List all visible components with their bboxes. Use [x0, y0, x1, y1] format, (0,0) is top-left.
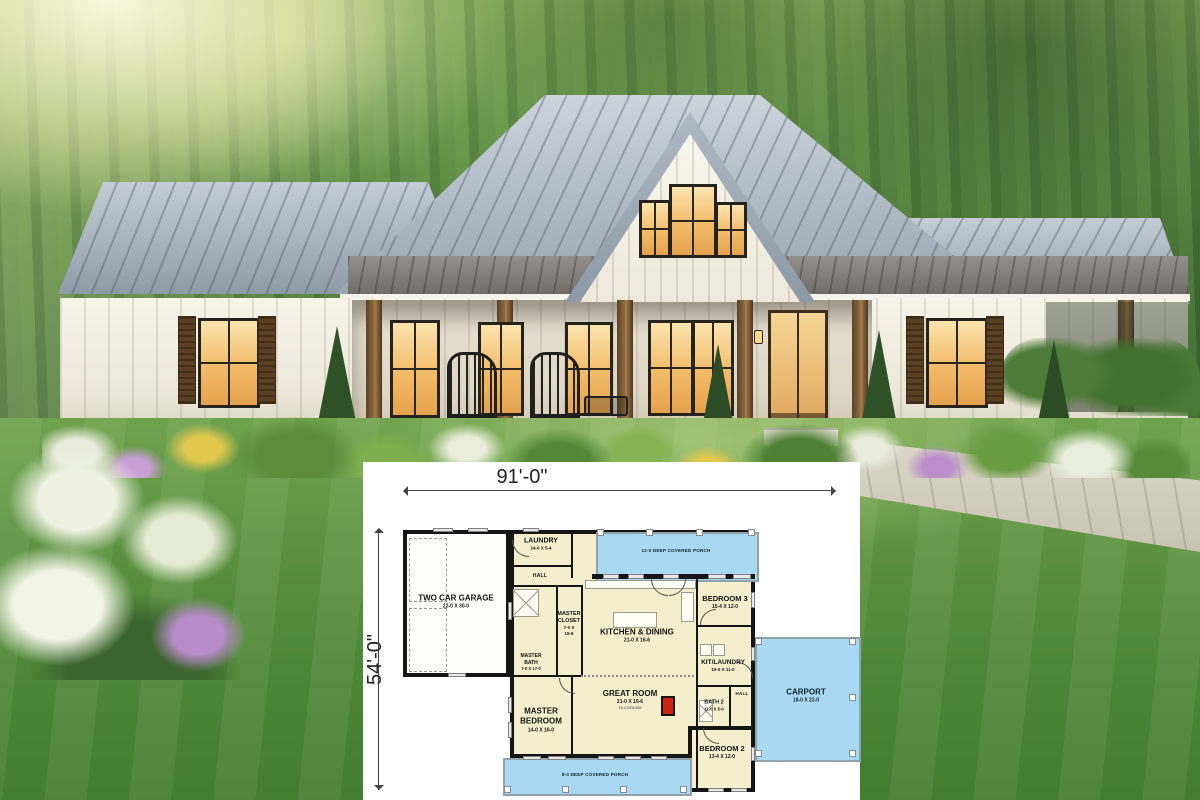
wall: [510, 585, 583, 587]
room-name: BEDROOM 2: [699, 744, 744, 753]
room-dims: 22-0 X 30-0: [418, 604, 494, 611]
window-marker: [625, 756, 641, 760]
fireplace: [661, 696, 675, 716]
room-dims: 13-4 X 12-0: [699, 754, 744, 761]
great-room-label: GREAT ROOM 21-0 X 19-6 10-4 CEILING: [603, 689, 658, 711]
room-dims: 14-0 X 16-0: [515, 727, 567, 734]
window-marker: [731, 788, 747, 792]
window-marker: [598, 756, 614, 760]
floor-plan-panel: 91'-0" 54'-0": [363, 462, 860, 800]
room-name: LAUNDRY: [524, 538, 558, 545]
kitchen-label: KITCHEN & DINING 21-0 X 16-6: [600, 628, 674, 645]
window-marker: [751, 647, 755, 661]
porch-column: [696, 529, 703, 536]
porch-column: [504, 786, 511, 793]
carport-column: [755, 750, 762, 757]
porch-column: [680, 786, 687, 793]
gable-window-left: [639, 200, 671, 258]
room-name: MASTER BATH: [520, 653, 541, 666]
room-dims: 15-0 X 11-0: [701, 667, 745, 673]
room-name: KIT/LAUNDRY: [701, 659, 745, 666]
window-marker: [508, 602, 512, 620]
room-name: GREAT ROOM: [603, 689, 658, 698]
room-dims: 14-0 X 5-4: [524, 546, 558, 552]
window-marker: [628, 574, 644, 579]
wall: [729, 685, 731, 728]
dimension-arrow-left: [403, 486, 408, 496]
laundry-label: LAUNDRY 14-0 X 5-4: [524, 537, 558, 552]
room-dims: 7-0 X 17-0: [516, 666, 546, 671]
dimension-arrow-top: [374, 528, 384, 533]
dryer: [713, 644, 725, 656]
carport-column: [849, 694, 856, 701]
room-name: CARPORT: [786, 688, 826, 697]
room-name: MASTER CLOSET: [557, 611, 580, 624]
master-bedroom-label: MASTER BEDROOM 14-0 X 16-0: [515, 706, 567, 733]
wall: [510, 565, 573, 567]
carport-column: [849, 750, 856, 757]
window-marker: [603, 574, 619, 579]
window-marker: [548, 756, 566, 760]
gable-window-right: [715, 202, 747, 258]
room-name: TWO CAR GARAGE: [418, 594, 494, 603]
kitchen-island: [613, 612, 657, 628]
room-name: MASTER BEDROOM: [520, 706, 562, 725]
dimension-line-vertical: [378, 530, 379, 790]
room-dims: 7-0 X 15-6: [561, 625, 577, 637]
carport-label: CARPORT 18-0 X 22-0: [786, 688, 826, 705]
room-dims: 21-0 X 16-6: [600, 638, 674, 645]
window-marker: [508, 722, 512, 738]
dimension-arrow-right: [831, 486, 836, 496]
wall: [696, 625, 755, 627]
porch-top-label: 12-0 DEEP COVERED PORCH: [642, 548, 711, 554]
porch-column: [748, 529, 755, 536]
window-marker: [751, 592, 755, 608]
overall-width-dimension: 91'-0": [497, 466, 548, 489]
room-name: BATH 2: [704, 700, 723, 706]
window-marker: [448, 673, 466, 677]
room-dims: 15-4 X 12-0: [702, 604, 747, 611]
bedroom3-label: BEDROOM 3 15-4 X 12-0: [702, 594, 747, 610]
room-dims: 18-0 X 22-0: [786, 698, 826, 705]
open-plan-divider: [581, 675, 698, 677]
room-dims: 11-0 X 5-0: [704, 707, 723, 712]
master-closet-label: MASTER CLOSET 7-0 X 15-6: [556, 611, 582, 637]
porch-column: [597, 529, 604, 536]
real-estate-listing-image: 91'-0" 54'-0": [0, 0, 1200, 800]
window-marker: [433, 528, 453, 532]
wall: [696, 685, 755, 687]
bedroom2-label: BEDROOM 2 13-4 X 12-0: [699, 744, 744, 760]
washer: [700, 644, 712, 656]
master-shower: [513, 589, 539, 617]
porch-bottom-label: 8-0 DEEP COVERED PORCH: [562, 772, 628, 778]
window-marker: [508, 697, 512, 713]
garage-bay: [409, 608, 447, 672]
porch-lantern: [754, 330, 763, 344]
gable-window-center: [669, 184, 717, 258]
window-marker: [523, 528, 539, 532]
window-marker: [468, 528, 488, 532]
hall-label: HALL: [736, 691, 749, 697]
wall: [571, 530, 573, 578]
window-marker: [708, 788, 724, 792]
room-name: KITCHEN & DINING: [600, 628, 674, 637]
master-bath-label: MASTER BATH 7-0 X 17-0: [516, 653, 546, 671]
window-marker: [651, 756, 667, 760]
window-marker: [523, 756, 541, 760]
kitchen-appliance: [681, 592, 694, 622]
porch-column: [620, 786, 627, 793]
dimension-arrow-bottom: [374, 785, 384, 790]
carport-column: [755, 638, 762, 645]
hall-label: HALL: [533, 573, 547, 580]
hydrangea-bush: [0, 430, 320, 680]
dimension-line-horizontal: [405, 490, 836, 491]
bath2-label: BATH 2 11-0 X 5-0: [704, 700, 723, 713]
room-name: BEDROOM 3: [702, 594, 747, 603]
garage-bay: [409, 538, 447, 602]
carport-column: [849, 638, 856, 645]
porch-column: [562, 786, 569, 793]
ceiling-note: 10-4 CEILING: [603, 706, 658, 711]
kit-laundry-label: KIT/LAUNDRY 15-0 X 11-0: [701, 659, 745, 673]
porch-column: [646, 529, 653, 536]
garage-label: TWO CAR GARAGE 22-0 X 30-0: [418, 594, 494, 611]
window-marker: [733, 574, 751, 579]
overall-depth-dimension: 54'-0": [364, 634, 387, 685]
window-marker: [708, 574, 726, 579]
